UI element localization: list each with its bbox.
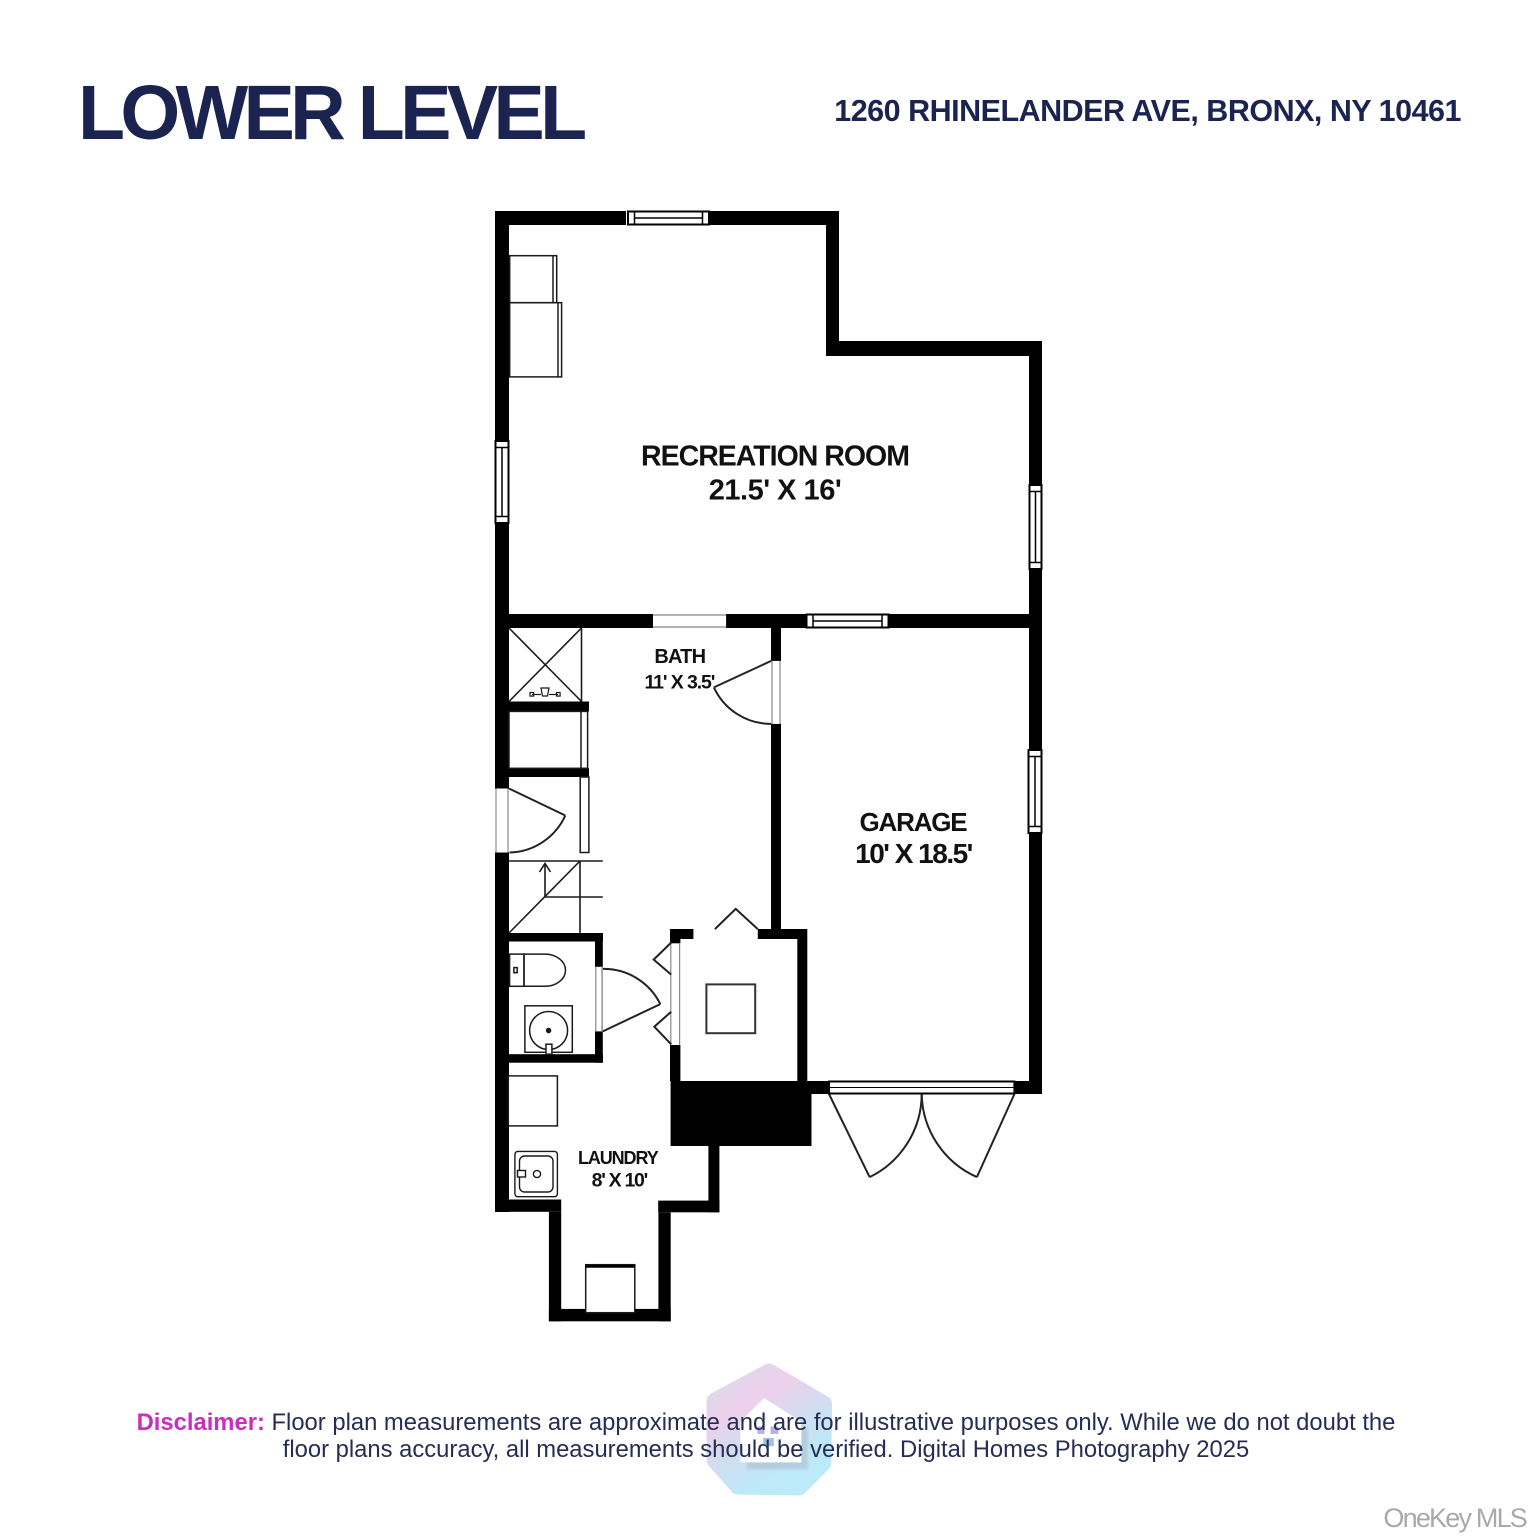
svg-text:OneKey MLS: OneKey MLS (1383, 1503, 1526, 1533)
svg-text:floor plans accuracy, all meas: floor plans accuracy, all measurements s… (283, 1436, 1249, 1463)
svg-text:10' X 18.5': 10' X 18.5' (855, 838, 973, 869)
svg-text:1260 RHINELANDER AVE, BRONX, N: 1260 RHINELANDER AVE, BRONX, NY 10461 (834, 94, 1461, 128)
svg-text:LAUNDRY: LAUNDRY (578, 1148, 659, 1168)
svg-text:Disclaimer: Floor plan measure: Disclaimer: Floor plan measurements are … (137, 1409, 1396, 1436)
svg-text:BATH: BATH (654, 646, 705, 668)
svg-text:21.5' X 16': 21.5' X 16' (709, 475, 841, 507)
svg-text:GARAGE: GARAGE (860, 807, 968, 837)
svg-text:8' X 10': 8' X 10' (592, 1170, 648, 1192)
svg-text:RECREATION ROOM: RECREATION ROOM (641, 441, 909, 473)
svg-text:LOWER LEVEL: LOWER LEVEL (78, 70, 585, 156)
svg-text:11' X 3.5': 11' X 3.5' (644, 672, 714, 694)
